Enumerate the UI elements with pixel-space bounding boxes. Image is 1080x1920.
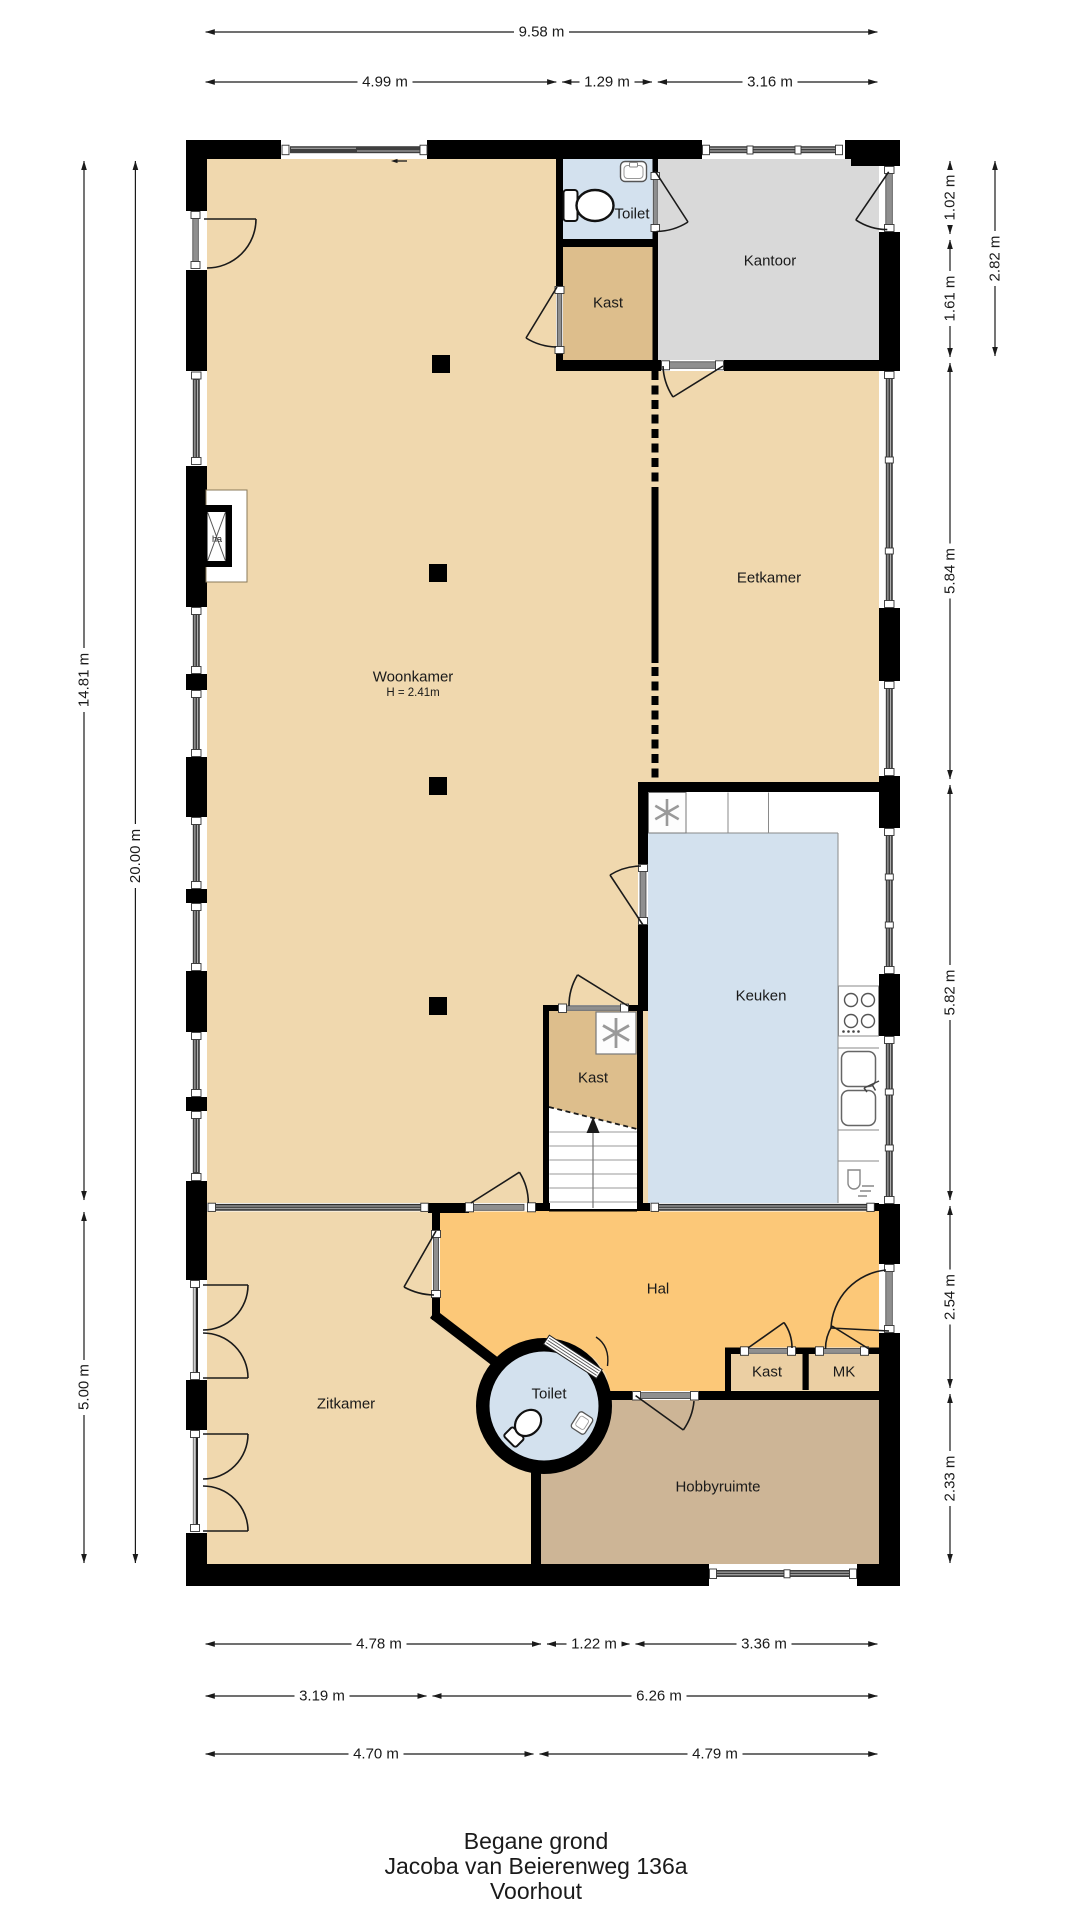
svg-text:4.70 m: 4.70 m	[353, 1746, 399, 1763]
svg-text:20.00 m: 20.00 m	[127, 829, 144, 883]
svg-text:1.02 m: 1.02 m	[942, 175, 959, 221]
svg-text:1.29 m: 1.29 m	[584, 74, 630, 91]
svg-text:Hobbyruimte: Hobbyruimte	[675, 1479, 760, 1496]
svg-text:4.99 m: 4.99 m	[362, 74, 408, 91]
svg-text:Kast: Kast	[752, 1364, 783, 1381]
svg-text:Toilet: Toilet	[531, 1386, 567, 1403]
svg-text:2.33 m: 2.33 m	[942, 1456, 959, 1502]
svg-text:3.16 m: 3.16 m	[747, 74, 793, 91]
svg-text:Kantoor: Kantoor	[744, 253, 797, 270]
svg-text:3.36 m: 3.36 m	[741, 1636, 787, 1653]
svg-text:Begane grond: Begane grond	[464, 1828, 609, 1854]
svg-text:5.00 m: 5.00 m	[76, 1364, 93, 1410]
svg-text:Toilet: Toilet	[614, 206, 650, 223]
svg-text:Woonkamer: Woonkamer	[373, 669, 454, 686]
svg-text:Keuken: Keuken	[736, 988, 787, 1005]
svg-text:3.19 m: 3.19 m	[299, 1688, 345, 1705]
svg-text:5.84 m: 5.84 m	[942, 548, 959, 594]
svg-text:4.78 m: 4.78 m	[356, 1636, 402, 1653]
svg-text:2.54 m: 2.54 m	[942, 1274, 959, 1320]
svg-text:Voorhout: Voorhout	[490, 1878, 583, 1904]
svg-text:Kast: Kast	[593, 295, 624, 312]
svg-text:MK: MK	[833, 1364, 856, 1381]
svg-text:14.81 m: 14.81 m	[76, 653, 93, 707]
svg-text:5.82 m: 5.82 m	[942, 970, 959, 1016]
svg-text:1.22 m: 1.22 m	[571, 1636, 617, 1653]
svg-text:4.79 m: 4.79 m	[692, 1746, 738, 1763]
svg-text:Hal: Hal	[647, 1281, 670, 1298]
svg-text:9.58 m: 9.58 m	[519, 24, 565, 41]
svg-text:ha: ha	[212, 534, 222, 544]
svg-text:Eetkamer: Eetkamer	[737, 570, 801, 587]
svg-text:2.82 m: 2.82 m	[987, 236, 1004, 282]
svg-text:6.26 m: 6.26 m	[636, 1688, 682, 1705]
svg-text:H = 2.41m: H = 2.41m	[386, 687, 439, 699]
svg-text:Zitkamer: Zitkamer	[317, 1396, 375, 1413]
svg-text:1.61 m: 1.61 m	[942, 276, 959, 322]
svg-text:Kast: Kast	[578, 1070, 609, 1087]
svg-text:Jacoba van Beierenweg 136a: Jacoba van Beierenweg 136a	[384, 1853, 687, 1879]
